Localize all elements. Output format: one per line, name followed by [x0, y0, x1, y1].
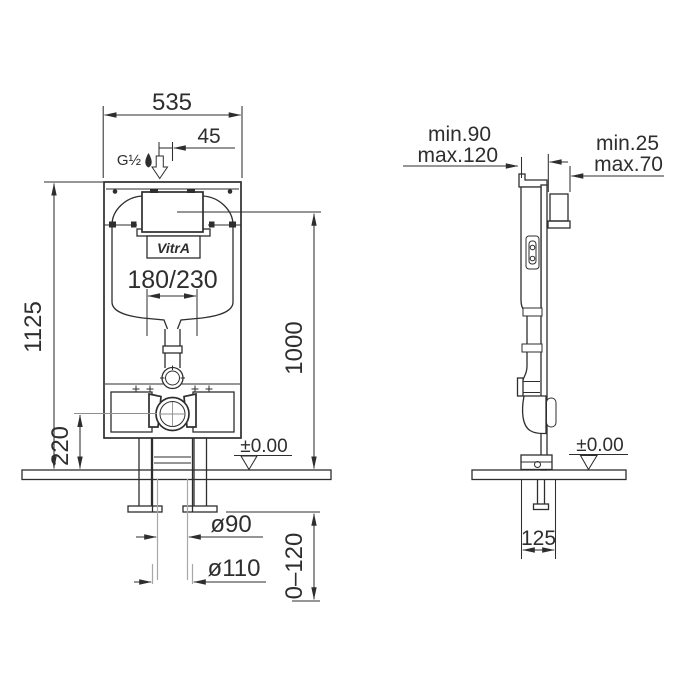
finish-min-label: min.25	[596, 132, 659, 155]
pipe-joint	[523, 308, 542, 316]
brand-plate: VitrA	[147, 236, 200, 258]
flange-plate	[518, 378, 524, 396]
depth-min-label: min.90	[428, 123, 491, 146]
installation-frame-technical-drawing: VitrA 180/230	[0, 0, 700, 700]
floor-level-label: ±0.00	[576, 435, 623, 456]
dim-overall-height-label: 1125	[20, 301, 47, 353]
dim-width-label: 535	[152, 89, 192, 116]
mounting-clip	[131, 222, 137, 228]
side-foot	[534, 504, 549, 510]
access-box-tab	[150, 189, 158, 193]
depth-max-label: max.120	[417, 144, 498, 167]
mounting-clip	[209, 222, 215, 228]
frame-cutout-right	[193, 392, 234, 432]
side-tank-profile	[521, 187, 541, 314]
outlet-socket-tab	[547, 398, 557, 427]
dim-offset-label: 45	[197, 125, 220, 148]
flush-volume-label: 180/230	[127, 266, 217, 294]
inlet-thread-label: G½	[117, 152, 142, 169]
dim-drain-inner-label: ø90	[210, 511, 251, 538]
access-box-tab	[187, 189, 195, 193]
floor-level-label: ±0.00	[240, 436, 287, 457]
flush-valve-circle-inner	[166, 371, 180, 385]
dim-drain-outer-label: ø110	[208, 555, 261, 582]
dim-base-depth-label: 125	[521, 527, 556, 550]
finish-max-label: max.70	[594, 153, 663, 176]
screw-dot-right	[228, 189, 233, 194]
pipe-joint	[522, 344, 542, 352]
brand-label: VitrA	[157, 240, 190, 256]
dim-actuation-height-label: 1000	[281, 321, 308, 374]
dim-depth-adjust-label: 0–120	[281, 533, 308, 600]
screw-dot-left	[113, 189, 118, 194]
dim-outlet-height-label: 220	[47, 426, 74, 466]
frame-cutout-left	[111, 392, 152, 432]
drawing-canvas: VitrA 180/230	[0, 0, 700, 700]
pipe-coupling	[163, 346, 182, 353]
